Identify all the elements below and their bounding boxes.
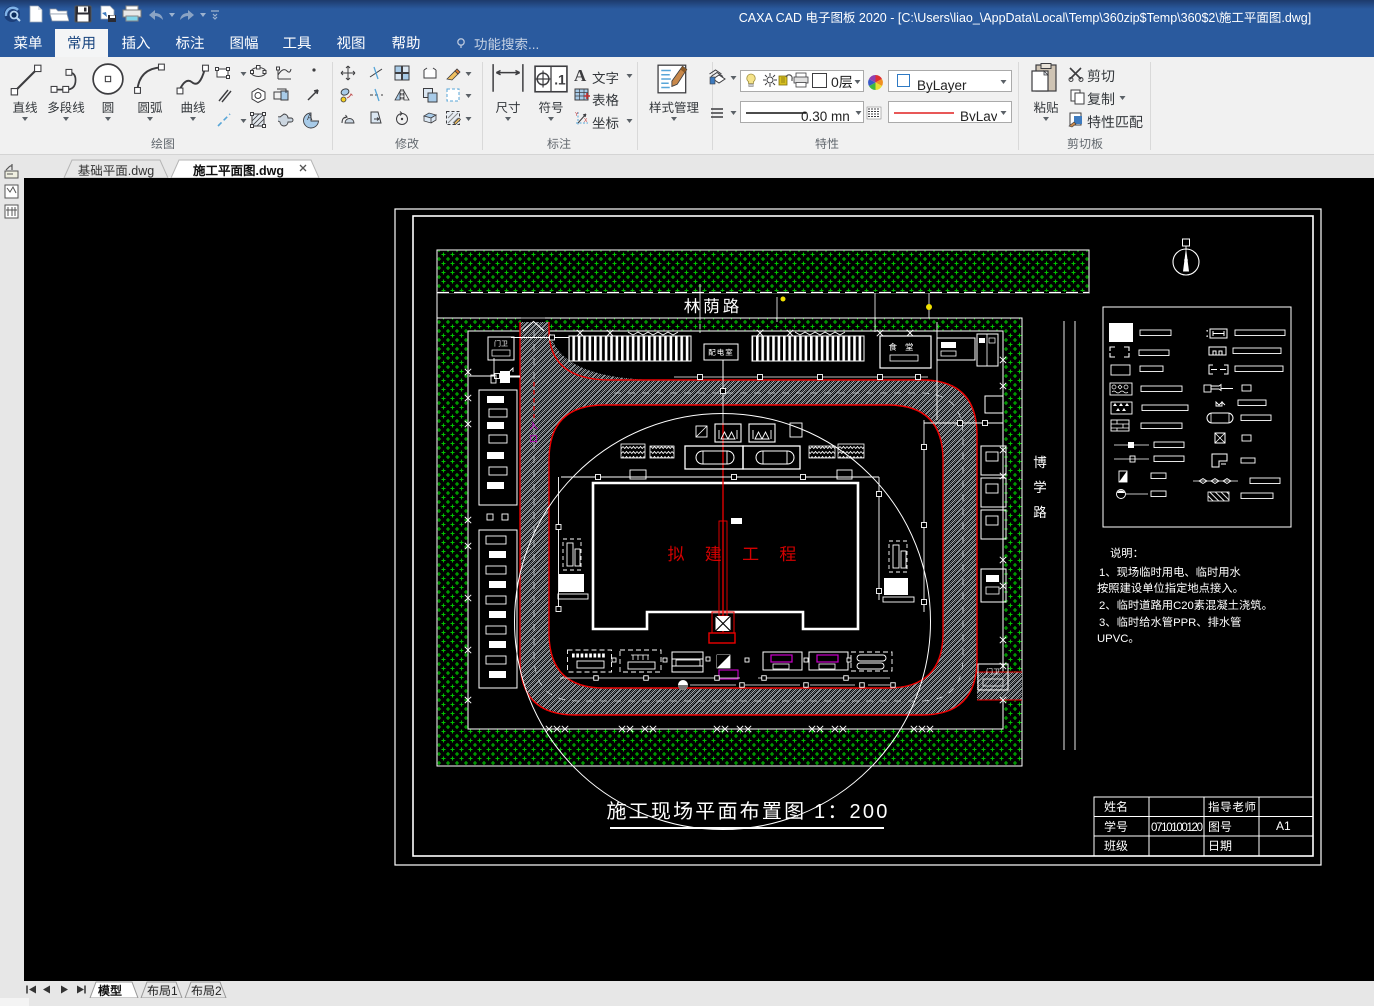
svg-text:.1: .1: [554, 68, 566, 88]
svg-text:A: A: [307, 112, 313, 123]
svg-text:门卫: 门卫: [986, 667, 1000, 677]
svg-text:门卫: 门卫: [494, 339, 508, 349]
svg-text:1、现场临时用电、临时用水: 1、现场临时用电、临时用水: [1099, 564, 1241, 580]
svg-text:A1: A1: [1276, 817, 1291, 834]
svg-text:学号: 学号: [1104, 818, 1128, 835]
svg-text:口: 口: [529, 432, 538, 445]
svg-text:入: 入: [529, 419, 538, 432]
svg-text:2、临时道路用C20素混凝土浇筑。: 2、临时道路用C20素混凝土浇筑。: [1099, 597, 1273, 613]
svg-text:班级: 班级: [1104, 837, 1128, 854]
svg-text:施工现场平面布置图 1：200: 施工现场平面布置图 1：200: [606, 795, 889, 824]
svg-text:图号: 图号: [1208, 818, 1232, 835]
svg-text:路: 路: [1033, 501, 1047, 521]
svg-text:学: 学: [1033, 476, 1047, 496]
svg-text:食堂: 食堂: [888, 341, 921, 353]
svg-text:日期: 日期: [1208, 837, 1232, 854]
svg-text:指导老师: 指导老师: [1208, 799, 1256, 815]
svg-text:拟建工程: 拟建工程: [668, 540, 817, 565]
svg-text:说明：: 说明：: [1110, 545, 1144, 561]
svg-text:3、临时给水管PPR、排水管: 3、临时给水管PPR、排水管: [1099, 614, 1241, 630]
svg-text:0710100120: 0710100120: [1151, 819, 1203, 835]
svg-text:林荫路: 林荫路: [684, 293, 743, 317]
svg-text:姓名: 姓名: [1104, 798, 1128, 815]
svg-text:UPVC。: UPVC。: [1097, 630, 1140, 646]
svg-text:配电室: 配电室: [708, 347, 734, 358]
svg-text:博: 博: [1033, 451, 1047, 471]
svg-text:按照建设单位指定地点接入。: 按照建设单位指定地点接入。: [1097, 580, 1244, 596]
